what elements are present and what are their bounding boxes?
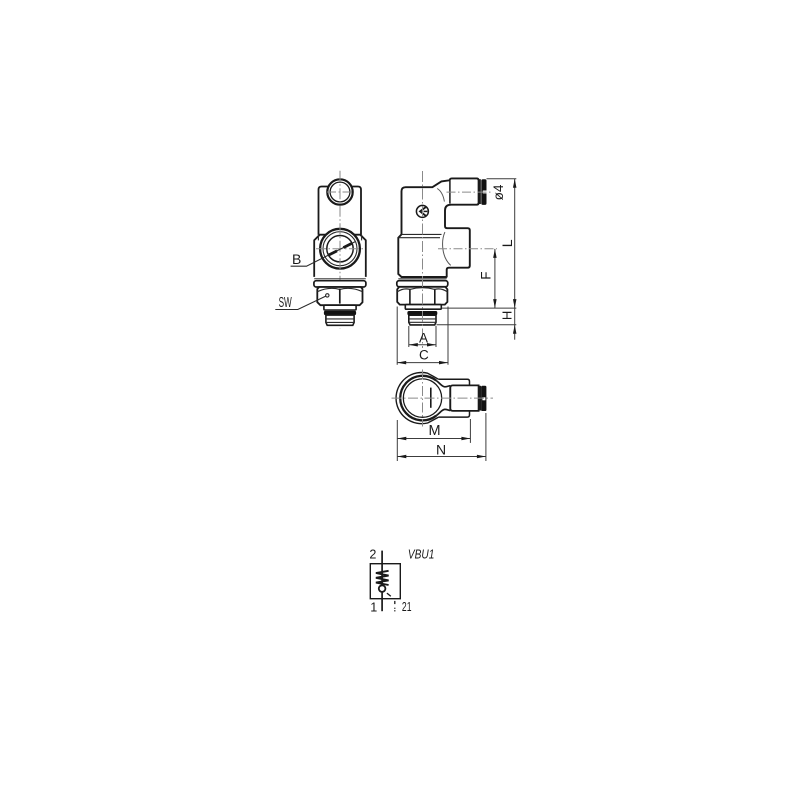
svg-text:1: 1 (370, 600, 377, 614)
svg-text:A: A (419, 331, 428, 346)
svg-text:N: N (436, 441, 446, 457)
svg-text:2: 2 (369, 548, 376, 562)
svg-text:VBU1: VBU1 (408, 546, 435, 561)
svg-text:21: 21 (402, 600, 412, 614)
svg-text:H: H (499, 311, 514, 320)
svg-text:C: C (419, 348, 429, 363)
svg-text:L: L (499, 239, 515, 247)
svg-text:B: B (292, 251, 301, 267)
svg-text:SW: SW (279, 295, 292, 311)
svg-text:F: F (479, 272, 494, 280)
svg-text:ø4: ø4 (491, 184, 506, 200)
svg-text:M: M (429, 423, 441, 439)
